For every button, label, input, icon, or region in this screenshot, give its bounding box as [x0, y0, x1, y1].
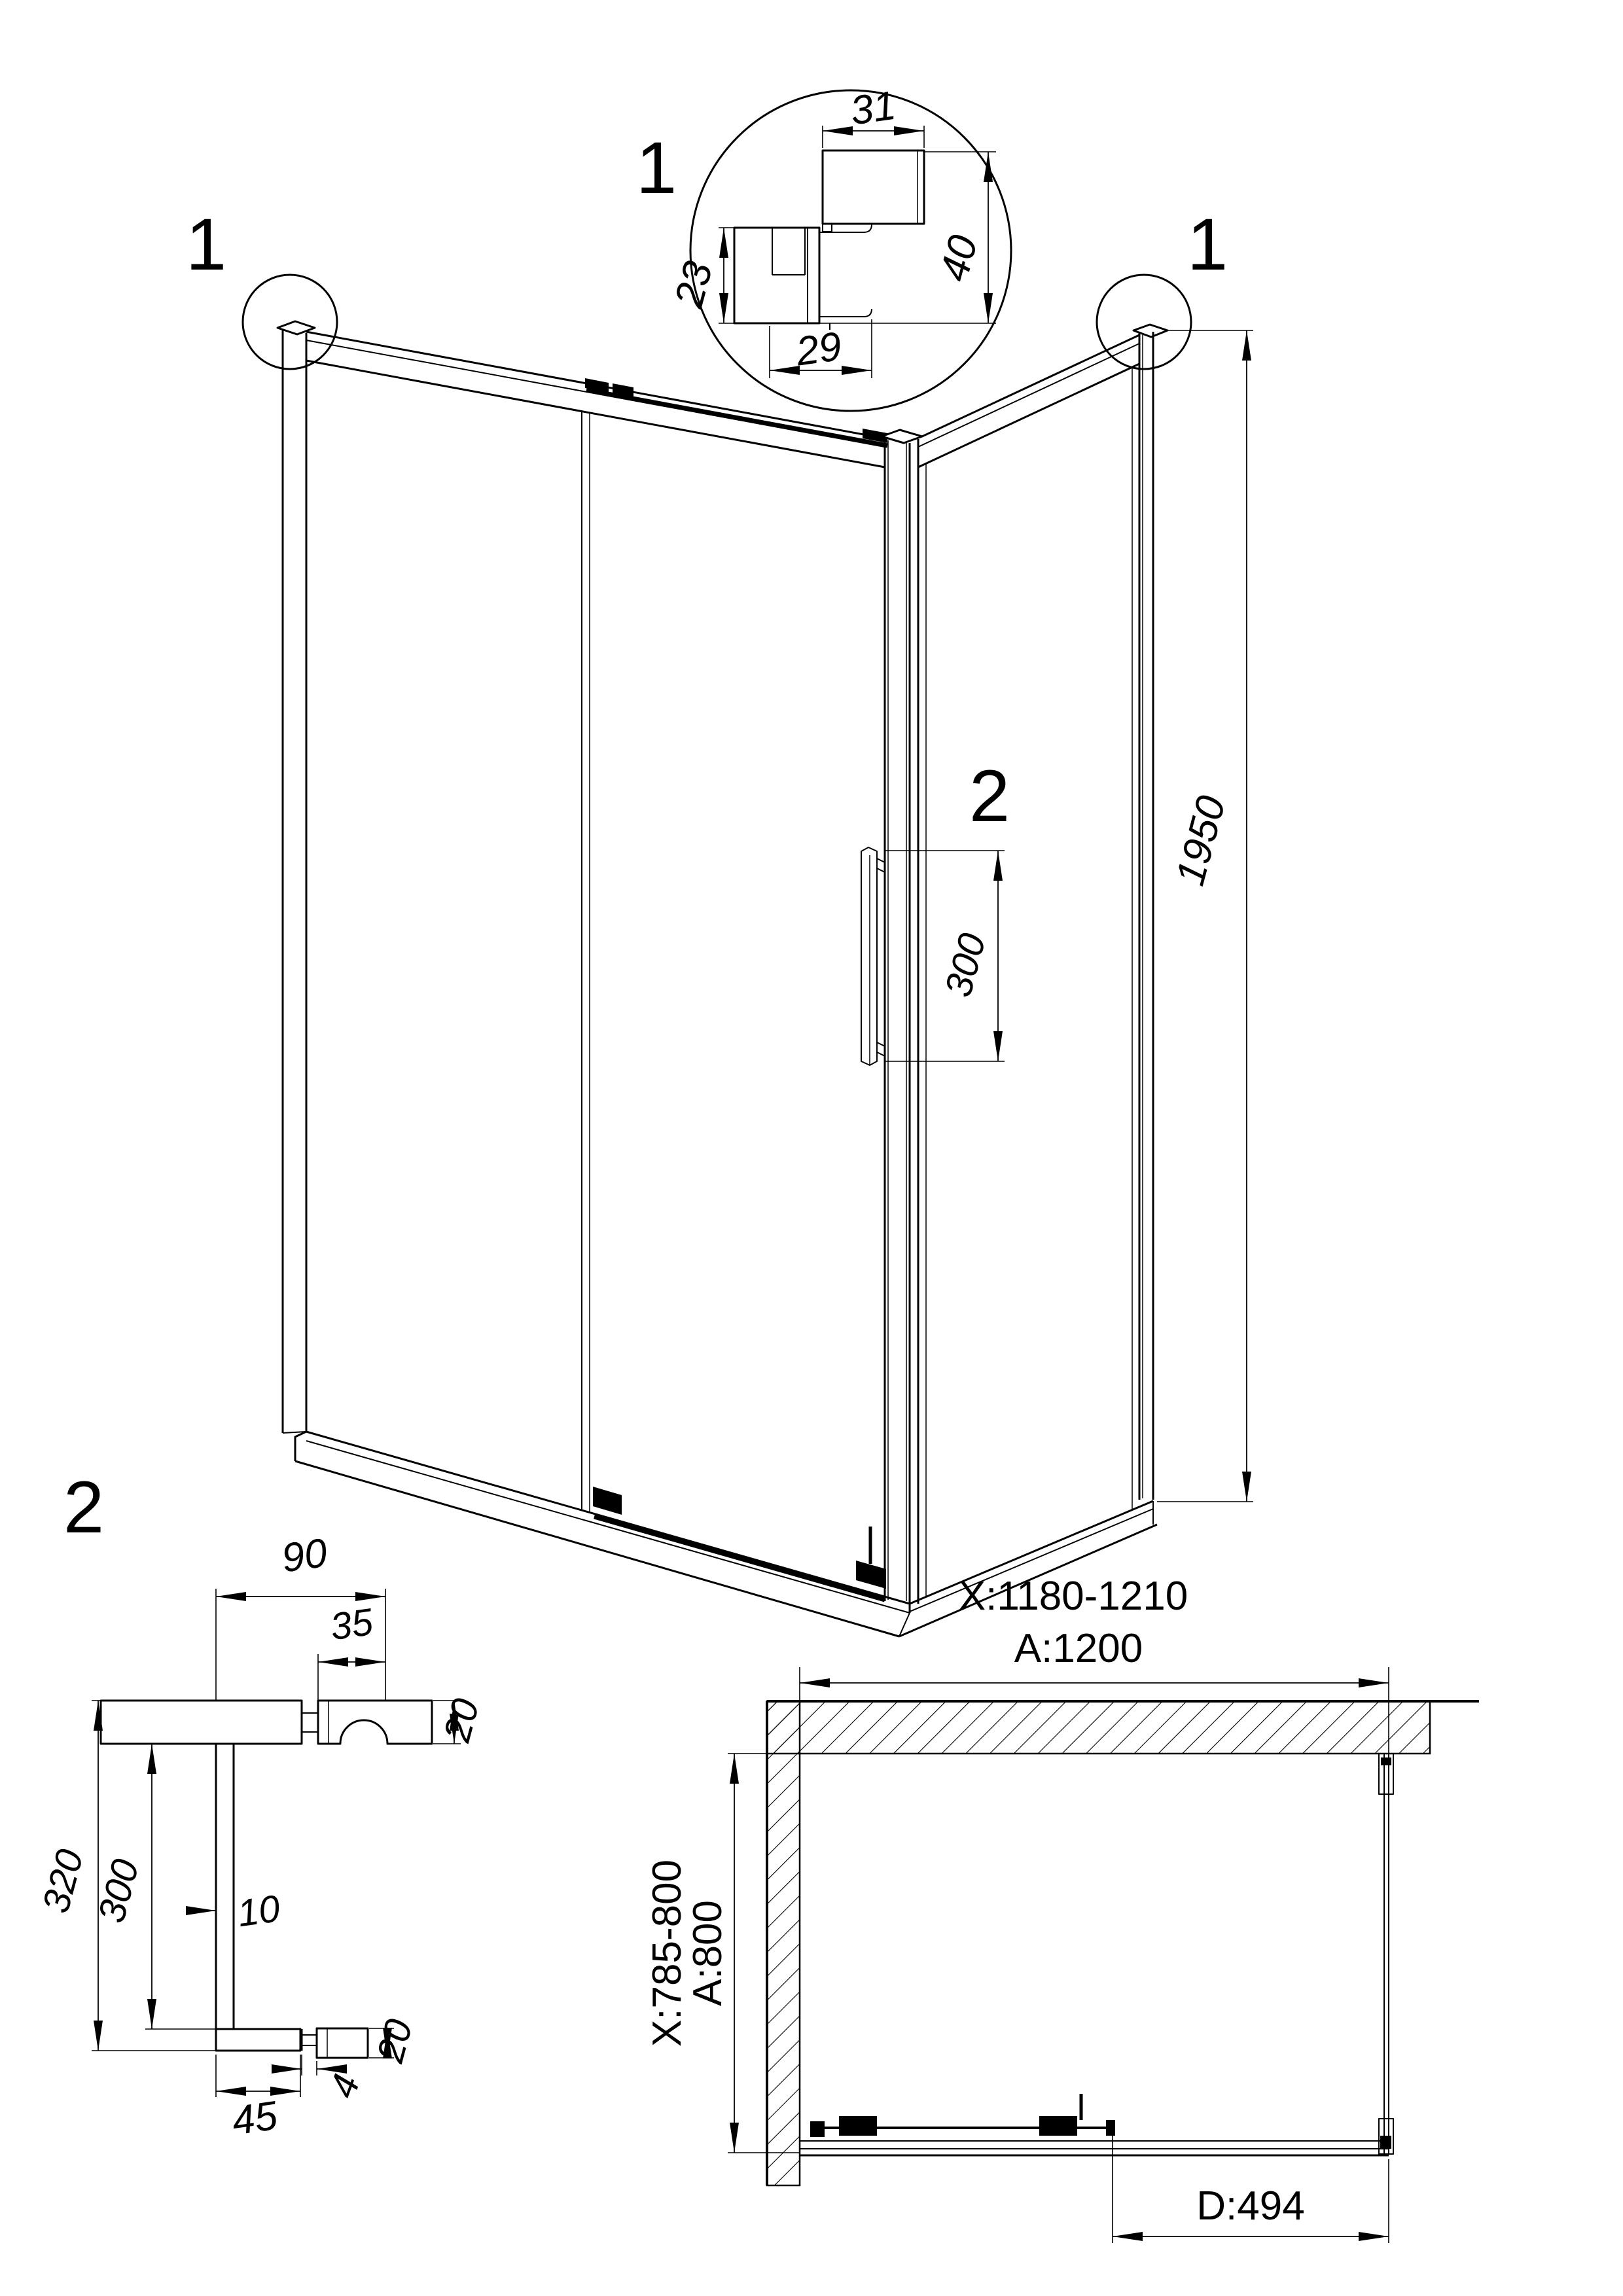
detail-dim-31: 31	[823, 83, 924, 148]
detail-1-callout: 1 31 40 23	[636, 83, 1011, 411]
door-handle	[861, 847, 885, 1065]
dim-20-top: 20	[433, 1694, 488, 1746]
dim-300-handle: 300	[936, 929, 994, 1001]
plan-side-panel	[1379, 1754, 1393, 2154]
handle-top-arm	[101, 1701, 302, 1744]
dim-height-1950: 1950	[1157, 330, 1253, 1502]
corner-marker-left: 1	[186, 203, 337, 369]
door-trailing-edge	[582, 412, 590, 1512]
wall-hatch-top	[767, 1701, 1430, 1754]
plan-width-nominal: A:1200	[1014, 1626, 1143, 1671]
roller-bracket-bottom-right	[856, 1561, 886, 1589]
corner-post	[882, 430, 922, 1613]
roller-bracket-bottom-left	[593, 1487, 622, 1515]
plan-depth-range: X:785-800	[645, 1860, 690, 2047]
dim-20-bottom: 20	[368, 2015, 421, 2067]
dim-300-detail: 300	[90, 1744, 216, 2029]
dim-20-top-text: 20	[435, 1694, 488, 1746]
dim-29: 29	[793, 324, 844, 375]
dim-40: 40	[931, 230, 986, 285]
plan-view: X:1180-1210 A:1200 X:785-800 A:800 D:494	[645, 1574, 1479, 2243]
plan-depth-nominal: A:800	[685, 1900, 730, 2006]
dim-35: 35	[318, 1600, 385, 1701]
plan-door-track	[800, 2094, 1389, 2155]
shower-enclosure-perspective: 2 300 1950	[277, 321, 1253, 1636]
plan-width-range: X:1180-1210	[959, 1574, 1188, 1619]
dim-320-text: 320	[34, 1845, 92, 1917]
handle-grip-bar	[216, 1744, 234, 2029]
handle-detail-number: 2	[63, 1466, 104, 1548]
handle-detail-marker: 2	[969, 755, 1010, 837]
corner-marker-right: 1	[1097, 203, 1228, 369]
dim-35-text: 35	[328, 1600, 376, 1648]
dim-10: 10	[190, 1887, 283, 1935]
handle-top-knob	[318, 1701, 432, 1744]
wall-profile-left	[277, 321, 315, 1433]
dim-handle-300: 2 300	[885, 755, 1010, 1061]
handle-mount-bottom	[877, 1042, 885, 1056]
plan-door-endcap	[1106, 2120, 1115, 2136]
handle-bottom-knob	[317, 2028, 368, 2058]
plan-roller-right	[1039, 2116, 1077, 2136]
handle-bottom-arm	[216, 2029, 300, 2051]
detail-dim-23: 23	[666, 228, 734, 323]
plan-door-dim: D:494	[1196, 2183, 1304, 2229]
dim-4-text: 4	[321, 2069, 368, 2104]
profile-cross-section	[734, 150, 924, 330]
dim-20-bottom-text: 20	[368, 2015, 421, 2067]
detail-1-number: 1	[636, 127, 677, 209]
detail-dim-29: 29	[770, 319, 872, 378]
sliding-track-bottom	[593, 1487, 886, 1600]
dim-4: 4	[278, 2055, 368, 2104]
dim-1950: 1950	[1168, 791, 1234, 890]
dim-31: 31	[847, 83, 899, 134]
detail-dim-40: 40	[819, 152, 996, 323]
dim-23: 23	[666, 256, 722, 312]
dim-45: 45	[216, 2055, 300, 2144]
handle-detail: 2 90 35 20	[34, 1466, 488, 2144]
wall-profile-right	[1133, 325, 1168, 1500]
shower-enclosure-drawing: 1 31 40 23	[0, 0, 1623, 2296]
corner-marker-right-number: 1	[1187, 203, 1228, 285]
plan-roller-left	[839, 2116, 877, 2136]
bottom-rail	[295, 1432, 910, 1636]
wall-hatch-left	[767, 1701, 800, 2185]
corner-marker-left-number: 1	[186, 203, 226, 285]
dim-90-text: 90	[279, 1530, 330, 1581]
dim-10-text: 10	[235, 1887, 283, 1935]
dim-45-text: 45	[229, 2093, 280, 2144]
technical-drawing-sheet: 1 31 40 23	[0, 0, 1623, 2296]
handle-mount-top	[877, 858, 885, 872]
